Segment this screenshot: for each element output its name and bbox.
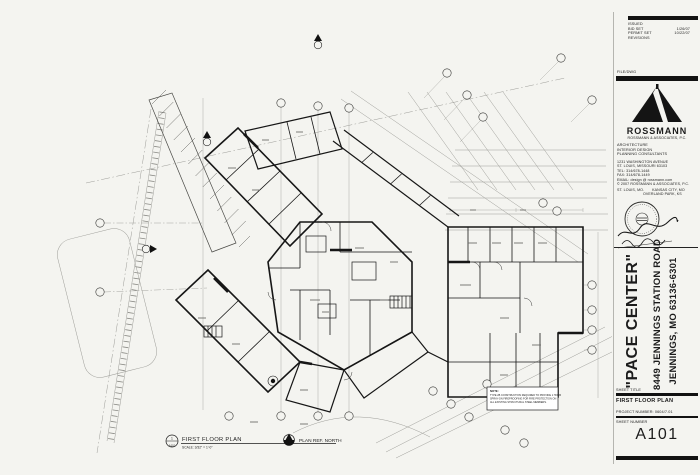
issued-block: ISSUED BID SET 1/26/07 PERMIT SET 10/22/… [628,22,698,41]
bottom-bar [616,456,698,460]
door-swings [268,222,532,380]
project-number-line: PROJECT NUMBER: 0604/7.01 [616,410,673,414]
project-number: 0604/7.01 [655,410,673,414]
drawing-scale: SCALE: 3/32" = 1'-0" [182,446,213,450]
project-number-bar [616,416,698,419]
firm-name: ROSSMANN [616,126,698,136]
file-bar [616,76,698,81]
issued-set-date: 10/22/07 [674,31,690,36]
north-label: PLAN REF. NORTH [299,438,342,444]
title-block-divider [613,12,614,464]
property-line-north [86,78,565,183]
south-rooms-outline [344,332,428,398]
firm-services: ARCHITECTURE INTERIOR DESIGN PLANNING CO… [617,143,667,157]
revisions-label: REVISIONS [628,36,698,41]
north-rooms-outline [245,112,342,169]
project-name: "PACE CENTER" [624,252,642,390]
project-address-line1: 8449 JENNINGS STATION ROAD [652,252,663,390]
file-dwg-label: FILE/DWG [617,70,636,74]
rossmann-logo [632,84,682,124]
casework [204,236,412,337]
sheet-number-label: SHEET NUMBER [616,420,647,424]
parking-rows [445,150,608,230]
note-line: NOTE: [490,389,499,393]
sheet-title-label: SHEET TITLE [616,388,641,392]
hatch-band [149,90,250,252]
address-line: © 2007 ROSSMANN & ASSOCIATES, P.C. [617,182,689,186]
project-number-label: PROJECT NUMBER: [616,410,654,414]
sheet-title: FIRST FLOOR PLAN [616,398,673,404]
building-walls [176,112,583,412]
entry-walk-curve [293,417,430,437]
parking-stripes [408,92,573,190]
detail-ref-number: 1 [171,436,173,440]
project-address-line2: JENNINGS, MO 63136-6301 [668,252,679,390]
sheet-title-bar [616,393,698,396]
entry-vestibule [286,362,344,412]
sidewalk-hatch-band [111,112,163,442]
note-box: NOTE: TYPE 2B CONSTRUCTION REQUIRED TO P… [487,387,561,410]
issued-bar [628,16,698,20]
sheet-number: A101 [616,426,698,444]
firm-address: 1231 WASHINGTON AVENUE ST. LOUIS, MISSOU… [617,160,689,187]
property-line-west [97,109,151,453]
drawing-sheet: NOTE: TYPE 2B CONSTRUCTION REQUIRED TO P… [0,0,700,475]
detail-ref-sheet: A101 [169,443,176,447]
drawing-title: FIRST FLOOR PLAN [182,437,242,443]
note-line: ALL EXISTING STRUCTURAL STEEL MEMBERS. [490,401,547,404]
firm-legal-name: ROSSMANN & ASSOCIATES, P.C. [616,136,698,140]
architect-seal [616,196,680,252]
north-arrow: PLAN REF. NORTH [284,434,342,446]
interior-partitions [207,117,583,397]
service-line: PLANNING CONSULTANTS [617,152,667,157]
room-label-marks [198,132,547,424]
office-location: ST. LOUIS, MO. [617,188,644,192]
floor-plan-drawing: NOTE: TYPE 2B CONSTRUCTION REQUIRED TO P… [0,0,612,475]
section-markers [142,34,322,386]
